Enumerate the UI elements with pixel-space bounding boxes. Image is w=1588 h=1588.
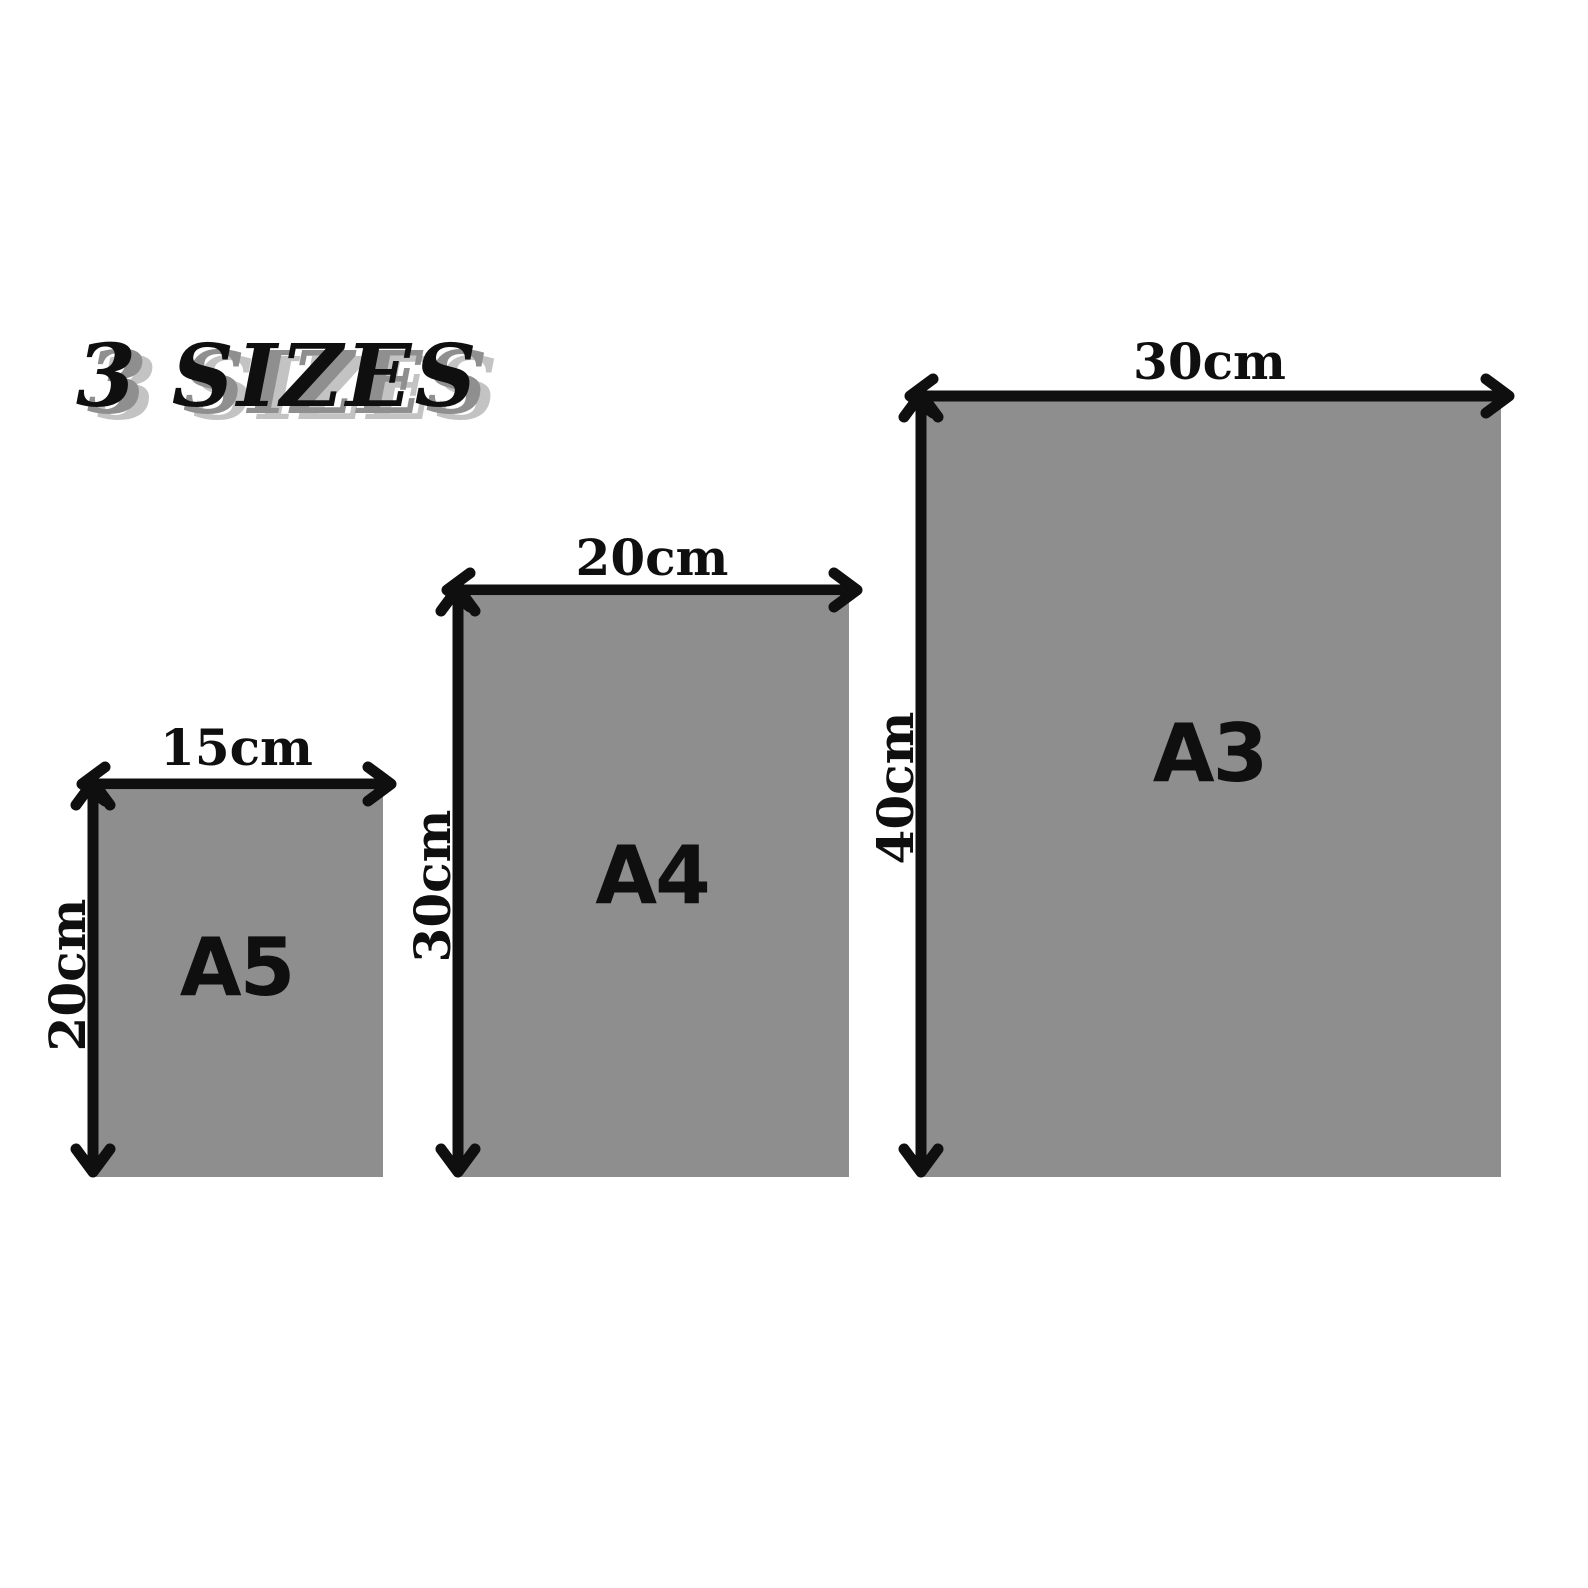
a4-width-arrow-icon [437,566,867,614]
size-box-a4: A4 [455,596,849,1177]
size-chart-canvas: 3 SIZES A5 15cm 20cm A4 20cm 30cm A3 30c… [0,0,1588,1588]
size-box-a3-label: A3 [1153,714,1267,794]
a3-height-arrow-icon [897,384,945,1182]
size-box-a3: A3 [918,400,1501,1177]
a5-width-arrow-icon [72,760,401,808]
a5-height-arrow-icon [69,772,117,1182]
a3-width-arrow-icon [900,372,1519,420]
size-box-a5: A5 [90,790,383,1177]
size-box-a4-label: A4 [595,836,709,916]
size-box-a5-label: A5 [180,928,294,1008]
a4-height-arrow-icon [434,578,482,1182]
page-title: 3 SIZES [76,330,480,425]
